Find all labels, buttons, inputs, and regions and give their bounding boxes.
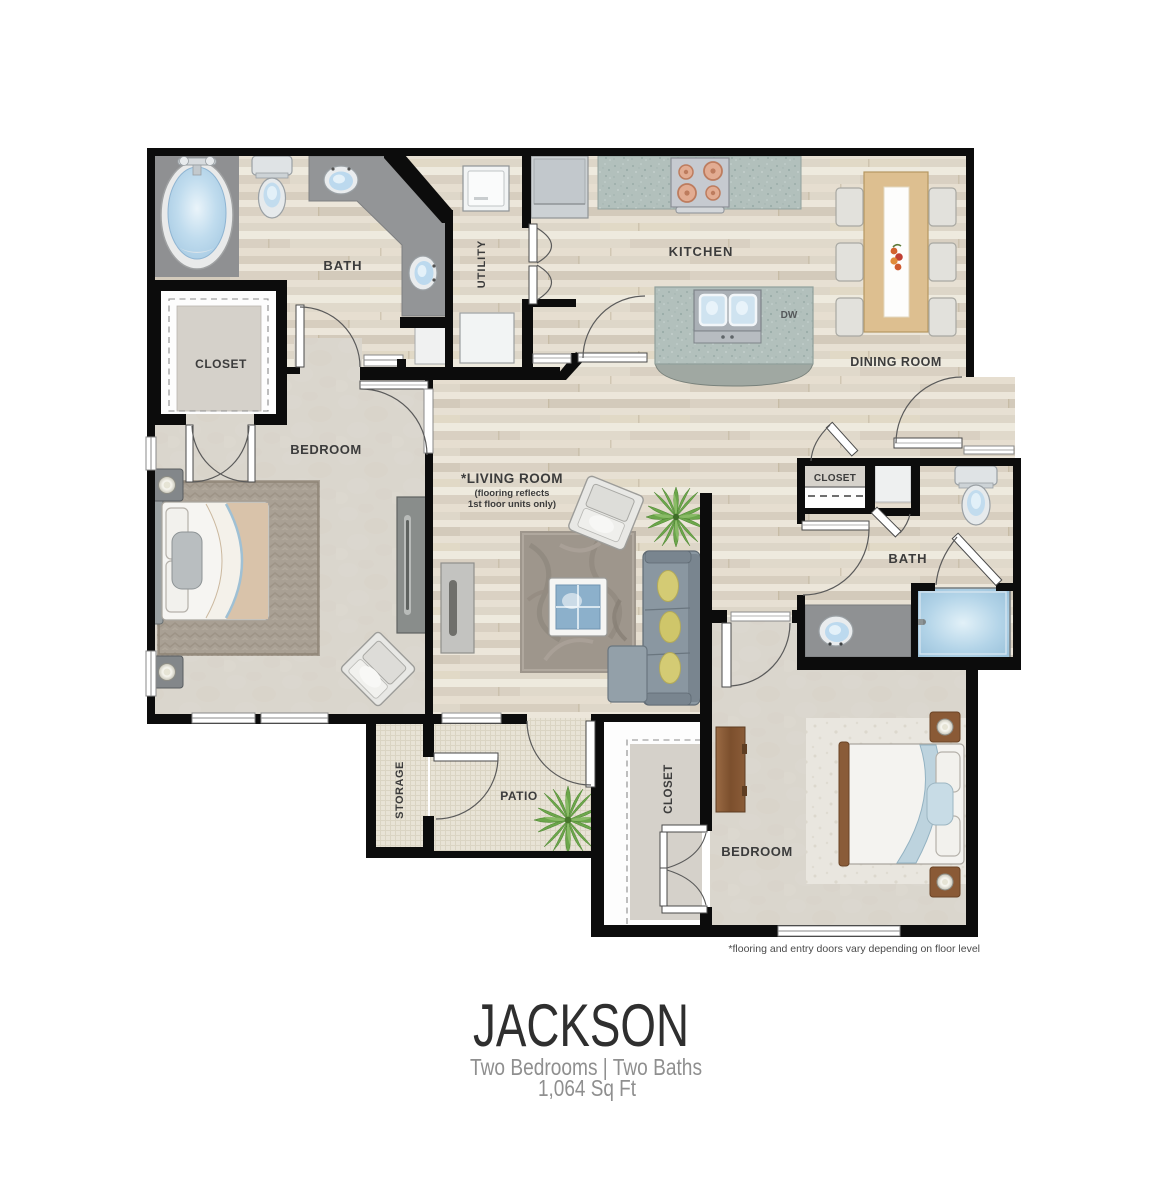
svg-text:DINING ROOM: DINING ROOM [850, 355, 942, 369]
svg-text:JACKSON: JACKSON [473, 992, 689, 1059]
svg-text:UTILITY: UTILITY [476, 240, 488, 289]
svg-text:BEDROOM: BEDROOM [290, 442, 361, 457]
svg-text:BEDROOM: BEDROOM [721, 844, 792, 859]
svg-text:CLOSET: CLOSET [663, 764, 675, 814]
svg-text:STORAGE: STORAGE [394, 761, 406, 819]
svg-text:BATH: BATH [323, 258, 362, 273]
svg-text:KITCHEN: KITCHEN [669, 244, 734, 259]
svg-text:DW: DW [781, 310, 798, 321]
svg-text:BATH: BATH [888, 551, 927, 566]
svg-text:*flooring and entry doors vary: *flooring and entry doors vary depending… [728, 943, 980, 955]
svg-text:*LIVING ROOM: *LIVING ROOM [461, 471, 563, 486]
svg-text:1,064 Sq Ft: 1,064 Sq Ft [538, 1075, 636, 1101]
svg-text:1st floor units only): 1st floor units only) [468, 499, 556, 510]
svg-text:PATIO: PATIO [500, 789, 537, 803]
svg-text:(flooring reflects: (flooring reflects [475, 488, 550, 499]
svg-text:CLOSET: CLOSET [195, 357, 247, 371]
svg-text:CLOSET: CLOSET [814, 473, 856, 484]
